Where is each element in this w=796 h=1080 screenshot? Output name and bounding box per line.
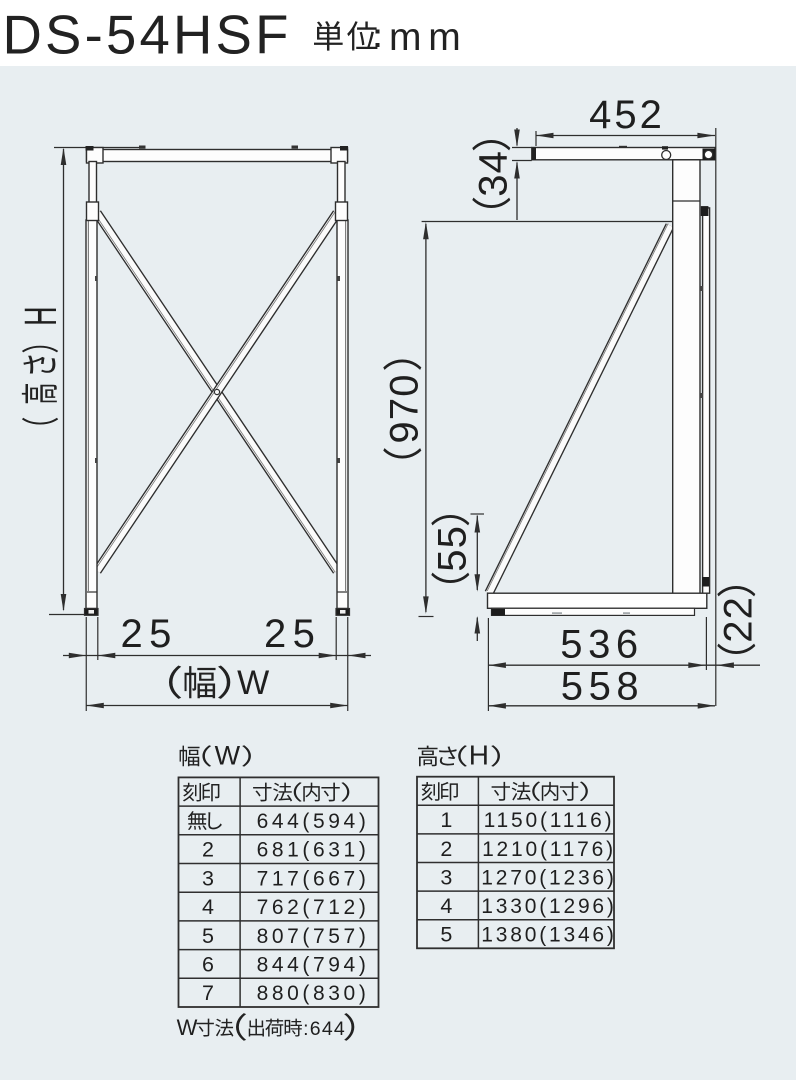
svg-text:W: W	[237, 664, 269, 702]
svg-text:762(712): 762(712)	[257, 896, 370, 919]
svg-text:807(757): 807(757)	[257, 925, 370, 948]
svg-text:452: 452	[589, 93, 665, 137]
svg-text:681(631): 681(631)	[257, 839, 370, 862]
svg-text:844(794): 844(794)	[257, 954, 370, 977]
svg-text:1330(1296): 1330(1296)	[481, 895, 616, 918]
svg-text:2: 2	[440, 837, 452, 861]
svg-text:W: W	[215, 741, 241, 771]
svg-text:22: 22	[717, 596, 761, 643]
svg-text::644: :644	[303, 1018, 346, 1040]
svg-text:4: 4	[202, 895, 214, 919]
svg-text:5: 5	[440, 923, 452, 947]
svg-text:H: H	[469, 740, 489, 771]
svg-text:2: 2	[202, 838, 214, 862]
svg-text:4: 4	[440, 894, 452, 918]
svg-text:34: 34	[472, 150, 516, 197]
svg-text:3: 3	[202, 866, 214, 890]
svg-text:717(667): 717(667)	[257, 867, 370, 890]
svg-text:1380(1346): 1380(1346)	[481, 924, 616, 947]
svg-text:7: 7	[202, 981, 214, 1005]
svg-text:55: 55	[431, 525, 475, 572]
svg-text:H: H	[15, 306, 66, 325]
svg-text:1210(1176): 1210(1176)	[482, 838, 616, 861]
svg-text:1270(1236): 1270(1236)	[481, 866, 616, 889]
svg-text:880(830): 880(830)	[257, 982, 370, 1005]
svg-text:6: 6	[202, 953, 214, 977]
svg-text:3: 3	[440, 865, 452, 889]
svg-text:25: 25	[264, 612, 322, 656]
svg-text:25: 25	[120, 612, 178, 656]
svg-text:W: W	[177, 1015, 198, 1040]
svg-text:536: 536	[560, 623, 644, 667]
svg-text:644(594): 644(594)	[257, 810, 370, 833]
svg-text:DS-54HSF: DS-54HSF	[3, 5, 292, 66]
svg-text:1150(1116): 1150(1116)	[484, 809, 615, 832]
svg-text:558: 558	[561, 665, 645, 709]
svg-text:970: 970	[383, 373, 427, 443]
svg-text:1: 1	[440, 808, 452, 832]
svg-text:5: 5	[202, 924, 214, 948]
svg-text:mm: mm	[389, 16, 468, 59]
